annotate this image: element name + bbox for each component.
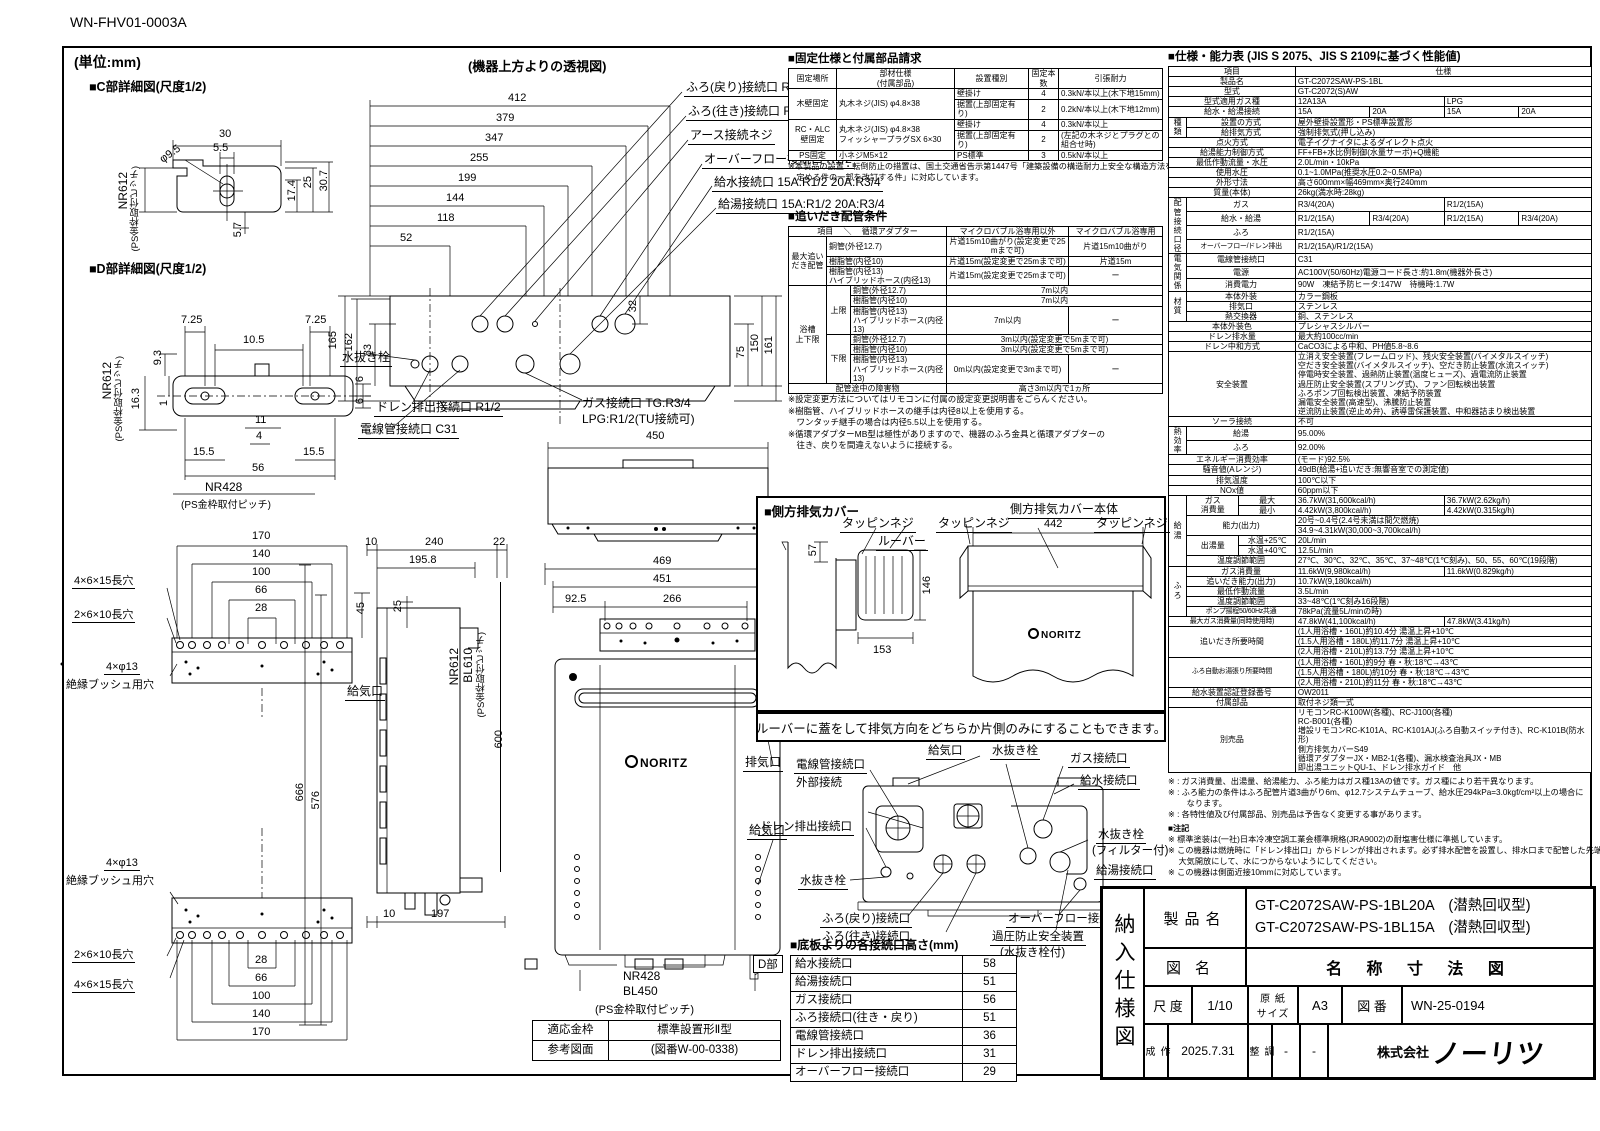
table-cell: ふろ接続口(往き・戻り) xyxy=(791,1009,963,1027)
table-cell: 排気口 xyxy=(1187,301,1296,311)
part-label: 給気口 xyxy=(926,744,965,760)
dim-label: 75 xyxy=(736,346,747,358)
table-cell: 温度調節範囲 xyxy=(1187,596,1296,606)
table-cell: 7m以内 xyxy=(947,306,1069,335)
table-cell: 78kPa(流量5L/minの時) xyxy=(1295,607,1591,617)
table-cell: 熱交換器 xyxy=(1187,311,1296,321)
noritz-logo: NORITZ xyxy=(1028,628,1081,641)
part-label: 水抜き栓 xyxy=(798,874,848,890)
table-cell: 12A13A xyxy=(1295,97,1444,107)
table-cell: 58 xyxy=(963,956,1017,974)
table-cell: ふろ xyxy=(1187,226,1296,240)
table-cell: 据置(上部固定有り) xyxy=(955,99,1029,119)
spec-note: ※ : ガス消費量、出湯量、給湯能力、ふろ能力はガス種13Aの値です。ガス種によ… xyxy=(1168,776,1592,787)
table-cell: 20L/min xyxy=(1295,536,1591,546)
dim-label: 197 xyxy=(431,908,449,920)
table-cell: 付属部品 xyxy=(1169,698,1296,708)
remarks-note: ※ この機器は燃焼時に「ドレン排出口」からドレンが排出されます。必ず排水配管を設… xyxy=(1168,845,1592,856)
dim-label: 666 xyxy=(295,783,306,801)
table-cell: 給湯能力制御方式 xyxy=(1169,147,1296,157)
table-cell: 片道15m10曲がり xyxy=(1069,237,1163,256)
fixing-table: 固定場所部材仕様(付属部品)設置種別固定本数引張耐力木壁固定丸木ネジ(JIS) … xyxy=(788,68,1163,161)
table-cell: (2人用浴槽・210L)約13.7分 湯温上昇+10℃ xyxy=(1295,647,1591,657)
table-cell: 高さ3m以内で1ヵ所 xyxy=(947,384,1163,394)
table-cell: 4.42kW(3,800kcal/h) xyxy=(1295,505,1444,515)
table-cell: 最小 xyxy=(1239,505,1295,515)
product-name-label: 製品名 xyxy=(1145,889,1247,947)
table-cell: 強制排気式(押し込み) xyxy=(1295,127,1591,137)
dim-label: 16.3 xyxy=(131,388,142,409)
table-cell: 本体外装 xyxy=(1187,291,1296,301)
table-cell: 3.5L/min xyxy=(1295,586,1591,596)
table-cell: GT-C2072(S)AW xyxy=(1295,87,1591,97)
table-cell: 51 xyxy=(963,1009,1017,1027)
dim-label: 162 xyxy=(344,333,355,351)
table-cell: 27℃、30℃、32℃、35℃、37~48℃(1℃刻み)、50、55、60℃(1… xyxy=(1295,556,1591,566)
table-cell: 29 xyxy=(963,1063,1017,1081)
table-cell: 丸木ネジ(JIS) φ4.8×38フィッシャープラグSX 6×30 xyxy=(837,119,955,150)
base-heights-table: 給水接続口58給湯接続口51ガス接続口56ふろ接続口(往き・戻り)51電線管接続… xyxy=(790,955,1017,1082)
table-cell: RC・ALC壁固定 xyxy=(789,119,837,150)
part-label: タッピンネジ xyxy=(840,516,916,533)
part-label: 外部接続 xyxy=(794,776,844,791)
spec-note: ※ : ふろ能力の条件はふろ配管片道3曲がり6m、φ12.7システムチューブ、給… xyxy=(1168,787,1592,798)
figure-name-label: 図名 xyxy=(1145,949,1247,985)
table-cell: 給湯 xyxy=(1169,495,1187,566)
table-cell: 点火方式 xyxy=(1169,137,1296,147)
remarks-note: 大気開放にして、水につからないようにしてください。 xyxy=(1168,856,1592,867)
table-cell: 最大追いだき配管 xyxy=(789,237,827,286)
table-cell: 樹脂管(内径13)ハイブリッドホース(内径13) xyxy=(827,266,947,285)
created-label: 作成 xyxy=(1141,1046,1171,1057)
table-cell: 安全装置 xyxy=(1169,352,1296,417)
spec-note: ※ : 各特性値及び付属部品、別売品は予告なく変更する事があります。 xyxy=(1168,809,1592,820)
drawing-no-label: 図 番 xyxy=(1343,987,1403,1023)
table-cell: 使用水圧 xyxy=(1169,168,1296,178)
table-cell: 給湯 xyxy=(1187,427,1296,441)
table-cell: 片道15m xyxy=(1069,256,1163,266)
dim-label: 240 xyxy=(425,536,443,548)
fixing-note: ※本製品の設置・転倒防止の措置は、国土交通省告示第1447号「建築設備の構造耐力… xyxy=(788,161,1164,172)
pitch-label: NR428 xyxy=(623,969,660,983)
table-cell: C31 xyxy=(1295,254,1591,266)
remarks-note: ※ 標準塗装は(一社)日本冷凍空調工業会標準規格(JRA9002)の耐塩害仕様に… xyxy=(1168,834,1592,845)
pitch-label: NR428 xyxy=(205,480,242,494)
side-view: 10 240 22 195.8 25 給気口 10 197 xyxy=(365,538,535,930)
dim-label: 4 xyxy=(256,430,262,442)
oidaki-table: 項目 ＼ 循環アダプターマイクロバブル浴専用以外マイクロバブル浴専用最大追いだき… xyxy=(788,226,1163,394)
part-label: 4×6×15長穴 xyxy=(72,978,135,993)
dim-label: 10 xyxy=(383,908,395,920)
table-cell: 上限 xyxy=(827,286,851,335)
oidaki-note: 往き、戻りを間違えないように接続する。 xyxy=(788,440,1164,451)
dim-label: 25 xyxy=(393,600,404,612)
side-exhaust-cover-section: ■側方排気カバー タッピンネジ ルーバー 57 146 153 側方排気カバー本… xyxy=(756,496,1166,712)
table-cell: 47.8kW(3.41kg/h) xyxy=(1444,617,1591,627)
part-label: 水抜き栓 xyxy=(340,350,392,367)
company-logo: 株式会社ノーリツ xyxy=(1329,1025,1593,1077)
frame-ref-table: 適応金枠標準設置形Ⅱ型参考図面(図番W-00-0338) xyxy=(532,1020,781,1061)
part-label: ふろ(戻り)接続口 xyxy=(820,912,912,928)
table-cell: 36 xyxy=(963,1027,1017,1045)
scale-label: 尺 度 xyxy=(1145,987,1193,1023)
table-cell: 固定場所 xyxy=(789,69,837,89)
table-cell: 最大 xyxy=(1239,495,1295,505)
part-label: ルーバー xyxy=(876,534,928,551)
table-cell: 樹脂管(内径10) xyxy=(851,345,947,355)
top-perspective-view: (機器上方よりの透視図) 412 379 347 255 199 144 118… xyxy=(330,56,790,438)
dim-label: 379 xyxy=(496,112,514,124)
table-cell: ポンプ揚程50/60Hz共通 xyxy=(1187,607,1296,617)
table-cell: 丸木ネジ(JIS) φ4.8×38 xyxy=(837,89,955,120)
table-cell: カラー鋼板 xyxy=(1295,291,1591,301)
table-cell: プレシャスシルバー xyxy=(1295,321,1591,331)
part-label: 電線管接続口 C31 xyxy=(358,422,459,439)
table-cell: 2 xyxy=(1029,130,1059,150)
table-cell: 配管接続口径 xyxy=(1169,198,1187,254)
table-cell: 項目 ＼ 循環アダプター xyxy=(789,227,947,237)
table-cell: 壁掛け xyxy=(955,89,1029,100)
table-cell: 質量(本体) xyxy=(1169,188,1296,198)
table-cell: 47.8kW(41,100kcal/h) xyxy=(1295,617,1444,627)
table-cell: 電線管接続口 xyxy=(1187,254,1296,266)
dim-label: 22 xyxy=(493,536,505,548)
dim-label: 15.5 xyxy=(193,446,214,458)
dim-label: 5.5 xyxy=(213,142,228,154)
product-name-1: GT-C2072SAW-PS-1BL20A (潜熱回収型) xyxy=(1255,896,1593,918)
table-cell: CaCO3による中和、PH値5.8~8.6 xyxy=(1295,342,1591,352)
table-cell: ふろ自動お湯張り所要時間 xyxy=(1169,657,1296,687)
table-cell: 15A xyxy=(1444,107,1519,117)
noritz-logo: NORITZ xyxy=(625,755,688,770)
product-name-2: GT-C2072SAW-PS-1BL15A (潜熱回収型) xyxy=(1255,918,1593,940)
part-label: ガス接続口 TG:R3/4 xyxy=(580,396,693,412)
table-cell: 26kg(満水時:28kg) xyxy=(1295,188,1591,198)
dim-label: 30 xyxy=(219,128,231,140)
pitch-label: BL610 xyxy=(462,648,474,683)
table-cell: 給水装置認証登録番号 xyxy=(1169,687,1296,697)
table-cell: 材質 xyxy=(1169,291,1187,321)
perspective-title: (機器上方よりの透視図) xyxy=(468,56,606,75)
table-cell: (モード)92.5% xyxy=(1295,455,1591,465)
dim-label: 195.8 xyxy=(409,554,437,566)
table-cell: 3 xyxy=(1029,150,1059,161)
table-cell: 20A xyxy=(1370,107,1445,117)
table-cell: オーバーフロー接続口 xyxy=(791,1063,963,1081)
pitch-note: (PS金枠取付ピッチ) xyxy=(477,632,487,718)
dim-label: 57 xyxy=(808,544,819,556)
dim-label: 28 xyxy=(255,602,267,614)
table-cell: 型式 xyxy=(1169,87,1296,97)
part-label: アース接続ネジ xyxy=(688,128,775,145)
part-label: タッピンネジ xyxy=(936,516,1012,533)
part-label: 給水接続口 xyxy=(1078,774,1140,790)
table-cell: マイクロバブル浴専用以外 xyxy=(947,227,1069,237)
table-cell: 仕様 xyxy=(1295,67,1591,77)
table-cell: 型式適用ガス種 xyxy=(1169,97,1296,107)
dim-label: 10 xyxy=(365,536,377,548)
table-cell: 本体外装色 xyxy=(1169,321,1296,331)
table-cell: ガス消費量 xyxy=(1187,566,1296,576)
pitch-label: BL450 xyxy=(623,984,658,998)
table-cell: 0.3kN/本以上 xyxy=(1059,119,1163,130)
dim-label: 146 xyxy=(922,576,933,594)
spec-capability-section: ■仕様・能力表 (JIS S 2075、JIS S 2109に基づく性能値) 項… xyxy=(1168,48,1592,878)
table-cell: リモコンRC-K100W(各種)、RC-J100(各種)RC-B001(各種)増… xyxy=(1295,708,1591,773)
table-cell: ガス接続口 xyxy=(791,991,963,1009)
part-label: LPG:R1/2(TU接続可) xyxy=(580,412,697,428)
dim-label: 153 xyxy=(873,644,891,656)
pitch-label: NR612 xyxy=(101,362,113,399)
table-cell: 60ppm以下 xyxy=(1295,485,1591,495)
table-cell: R3/4(20A) xyxy=(1295,198,1444,212)
table-cell: 最低作動流量 xyxy=(1187,586,1296,596)
table-cell: R1/2(15A) xyxy=(1444,198,1591,212)
pitch-note: (PS金枠取付ピッチ) xyxy=(115,356,125,442)
table-cell: NOx値 xyxy=(1169,485,1296,495)
dim-label: 5.7 xyxy=(233,222,244,237)
table-cell: 2.0L/min・10kPa xyxy=(1295,157,1591,167)
pitch-label: NR612 xyxy=(117,172,129,209)
table-cell: 銅管(外径12.7) xyxy=(851,335,947,345)
dim-label: 150 xyxy=(750,334,761,352)
noritz-mark-icon xyxy=(1028,628,1039,639)
table-cell: (1人用浴槽・160L)約9分 春・秋:18℃→43℃ xyxy=(1295,657,1591,667)
dim-label: 9.3 xyxy=(153,350,164,365)
table-cell: 3m以内(設定変更で5mまで可) xyxy=(947,345,1163,355)
table-cell: ー xyxy=(1069,266,1163,285)
part-label: 2×6×10長穴 xyxy=(72,608,135,623)
spec-note: なります。 xyxy=(1168,798,1592,809)
table-cell: 固定本数 xyxy=(1029,69,1059,89)
dim-label: 56 xyxy=(252,462,264,474)
part-label: 給湯接続口 xyxy=(1094,864,1156,880)
table-cell: 設置種別 xyxy=(955,69,1029,89)
base-heights-title: ■底板よりの各接続口高さ(mm) xyxy=(790,936,1020,953)
table-cell: 片道15m(設定変更で25mまで可) xyxy=(947,266,1069,285)
table-cell: 給水接続口 xyxy=(791,956,963,974)
table-cell: 56 xyxy=(963,991,1017,1009)
part-label: 電線管接続口 xyxy=(794,758,867,774)
dim-label: 100 xyxy=(252,566,270,578)
title-block-category: 納入仕様図 xyxy=(1103,889,1145,1077)
figure-name: 名 称 寸 法 図 xyxy=(1247,949,1593,985)
table-cell: 電気関係 xyxy=(1169,254,1187,291)
table-cell: 樹脂管(内径10) xyxy=(851,296,947,306)
dim-label: 52 xyxy=(400,232,412,244)
table-cell: 消費電力 xyxy=(1187,279,1296,292)
dim-label: 140 xyxy=(252,548,270,560)
paper-size-label: 原 紙サイズ xyxy=(1257,990,1290,1020)
table-cell: (1.5人用浴槽・180L)約10分 春・秋:18℃→43℃ xyxy=(1295,667,1591,677)
table-cell: 屋外壁掛設置形・PS標準設置形 xyxy=(1295,117,1591,127)
dim-label: 442 xyxy=(1044,518,1062,530)
dim-label: 451 xyxy=(653,573,671,585)
oidaki-note: ワンタッチ継手の場合は内径5.5以上を使用する。 xyxy=(788,417,1164,428)
table-cell: 不可 xyxy=(1295,416,1591,426)
dim-label: 469 xyxy=(653,555,671,567)
dim-label: 140 xyxy=(252,1008,270,1020)
dim-label: 266 xyxy=(663,593,681,605)
table-cell: 100℃以下 xyxy=(1295,475,1591,485)
table-cell: 温度調節範囲 xyxy=(1187,556,1296,566)
table-cell: R3/4(20A) xyxy=(1370,212,1445,226)
table-cell: 31 xyxy=(963,1045,1017,1063)
table-cell: 7m以内 xyxy=(947,296,1163,306)
table-cell: OW2011 xyxy=(1295,687,1591,697)
part-label: 水抜き栓 xyxy=(1096,828,1146,844)
table-cell: 樹脂管(内径10) xyxy=(827,256,947,266)
table-cell: R1/2(15A) xyxy=(1295,212,1370,226)
part-label: 水抜き栓 xyxy=(990,744,1040,760)
table-cell: 4 xyxy=(1029,89,1059,100)
table-cell: 立消え安全装置(フレームロッド)、残火安全装置(バイメタルスイッチ)空だき安全装… xyxy=(1295,352,1591,417)
table-cell: (左記の木ネジとプラグとの組合せ時) xyxy=(1059,130,1163,150)
table-cell: 能力(出力) xyxy=(1187,516,1296,536)
dim-label: 7.25 xyxy=(305,314,326,326)
spec-table-title: ■仕様・能力表 (JIS S 2075、JIS S 2109に基づく性能値) xyxy=(1168,48,1592,64)
table-cell: GT-C2072SAW-PS-1BL xyxy=(1295,77,1591,87)
table-cell: 追いだき能力(出力) xyxy=(1187,576,1296,586)
table-cell: R1/2(15A) xyxy=(1444,212,1519,226)
table-cell: 7m以内 xyxy=(947,286,1163,296)
part-label: ドレン排出接続口 xyxy=(758,820,854,836)
table-cell: 据置(上部固定有り) xyxy=(955,130,1029,150)
dim-label: 170 xyxy=(252,1026,270,1038)
dim-label: 576 xyxy=(311,791,322,809)
table-cell: 騒音値(Aレンジ) xyxy=(1169,465,1296,475)
part-label: ドレン排出接続口 R1/2 xyxy=(374,400,503,417)
table-cell: 取付ネジ類一式 xyxy=(1295,698,1591,708)
side-view-drawing xyxy=(365,538,535,930)
table-cell: オーバーフロー/ドレン排出 xyxy=(1187,240,1296,254)
table-cell: 12.5L/min xyxy=(1295,546,1591,556)
adjust-value-1: - xyxy=(1273,1025,1301,1077)
table-cell: ドレン中和方式 xyxy=(1169,342,1296,352)
noritz-mark-icon xyxy=(625,755,638,768)
dim-label: 199 xyxy=(458,172,476,184)
title-block: 納入仕様図 製品名 GT-C2072SAW-PS-1BL20A (潜熱回収型) … xyxy=(1100,886,1596,1080)
fixing-table-title: ■固定仕様と付属部品請求 xyxy=(788,50,1164,66)
dim-label: 66 xyxy=(255,584,267,596)
dim-label: 161 xyxy=(764,336,775,354)
dim-label: 347 xyxy=(485,132,503,144)
table-cell: 出湯量 xyxy=(1187,536,1239,556)
table-cell: 給水・給湯接続 xyxy=(1169,107,1296,117)
part-label: 4×φ13 xyxy=(104,660,140,675)
table-cell: 95.00% xyxy=(1295,427,1591,441)
table-cell: 11.6kW(9,980kcal/h) xyxy=(1295,566,1444,576)
dim-label: 255 xyxy=(470,152,488,164)
part-label: 給気口 xyxy=(345,684,385,701)
table-cell: ふろ xyxy=(1187,441,1296,455)
table-cell: 0.3kN/本以上(木下地15mm) xyxy=(1059,89,1163,100)
louver-note: ルーバーに蓋をして排気方向をどちらか片側のみにすることもできます。 xyxy=(756,712,1166,742)
table-cell: FF+FB+水比例制御(水量サーボ)+Q機能 xyxy=(1295,147,1591,157)
table-cell: R1/2(15A) xyxy=(1295,226,1591,240)
table-cell: 3m以内(設定変更で5mまで可) xyxy=(947,335,1163,345)
fixing-note: 定める件の一部を改訂する件」に対応しています。 xyxy=(788,172,1164,183)
table-cell: 給排気方式 xyxy=(1187,127,1296,137)
table-cell: PS固定 xyxy=(789,150,837,161)
table-cell: ドレン排水量 xyxy=(1169,331,1296,341)
pitch-note: (PS金枠取付ピッチ) xyxy=(131,166,141,252)
drawing-no-value: WN-25-0194 xyxy=(1403,987,1593,1023)
dim-label: 66 xyxy=(255,972,267,984)
table-cell: 11.6kW(0.829kg/h) xyxy=(1444,566,1591,576)
frame-ref-section: 適応金枠標準設置形Ⅱ型参考図面(図番W-00-0338) xyxy=(532,1020,782,1061)
table-cell: ステンレス xyxy=(1295,301,1591,311)
table-cell: 給水・給湯 xyxy=(1187,212,1296,226)
part-label: 2×6×10長穴 xyxy=(72,948,135,963)
fixing-spec-section: ■固定仕様と付属部品請求 固定場所部材仕様(付属部品)設置種別固定本数引張耐力木… xyxy=(788,50,1164,183)
adjust-value-2: - xyxy=(1301,1025,1329,1077)
table-cell: ふろ xyxy=(1169,566,1187,617)
table-cell: 銅管(外径12.7) xyxy=(827,237,947,256)
table-cell: 34.9~4.31kW(30,000~3,700kcal/h) xyxy=(1295,526,1591,536)
part-label: (フィルター付) xyxy=(1090,844,1170,859)
dim-label: 118 xyxy=(437,212,455,224)
pitch-label: NR612 xyxy=(448,648,460,685)
bracket-bottom-view: 4×φ13 絶縁ブッシュ用穴 2×6×10長穴 4×6×15長穴 28 66 1… xyxy=(62,828,392,1073)
table-cell: 15A xyxy=(1295,107,1370,117)
table-cell: ガス消費量 xyxy=(1187,495,1239,515)
table-cell: 33~48℃(1℃刻み16段階) xyxy=(1295,596,1591,606)
table-cell: 0.1~1.0MPa(推奨水圧0.2~0.5MPa) xyxy=(1295,168,1591,178)
table-cell: 引張耐力 xyxy=(1059,69,1163,89)
table-cell: 最大ガス消費量(同時使用時) xyxy=(1169,617,1296,627)
table-cell: 適応金枠 xyxy=(533,1021,609,1041)
table-cell: 10.7kW(9,180kcal/h) xyxy=(1295,576,1591,586)
part-label: ガス接続口 xyxy=(1068,752,1130,768)
oidaki-note: ※樹脂管、ハイブリッドホースの継手は内径8以上を使用する。 xyxy=(788,406,1164,417)
table-cell: ガス xyxy=(1187,198,1296,212)
table-cell: 下限 xyxy=(827,335,851,384)
table-cell: 片道15m10曲がり(設定変更で25mまで可) xyxy=(947,237,1069,256)
table-cell: 参考図面 xyxy=(533,1040,609,1060)
table-cell: PS標準 xyxy=(955,150,1029,161)
table-cell: AC100V(50/60Hz)電源コード長さ:約1.8m(機器外長さ) xyxy=(1295,266,1591,278)
table-cell: 4.42kW(0.315kg/h) xyxy=(1444,505,1591,515)
table-cell: (2人用浴槽・210L)約11分 春・秋:18℃→43℃ xyxy=(1295,677,1591,687)
spec-table: 項目仕様製品名GT-C2072SAW-PS-1BL型式GT-C2072(S)AW… xyxy=(1168,66,1592,773)
table-cell: 36.7kW(31,600kcal/h) xyxy=(1295,495,1444,505)
table-cell: マイクロバブル浴専用 xyxy=(1069,227,1163,237)
table-cell: 電子イグナイタによるダイレクト点火 xyxy=(1295,137,1591,147)
table-cell: 51 xyxy=(963,973,1017,991)
table-cell: 壁掛け xyxy=(955,119,1029,130)
part-label: タッピンネジ xyxy=(1094,516,1170,533)
table-cell: 4 xyxy=(1029,119,1059,130)
table-cell: 電源 xyxy=(1187,266,1296,278)
dim-label: 1 xyxy=(159,400,170,406)
table-cell: 片道15m(設定変更で25mまで可) xyxy=(947,256,1069,266)
table-cell: 銅、ステンレス xyxy=(1295,311,1591,321)
table-cell: 給湯接続口 xyxy=(791,973,963,991)
dim-label: 412 xyxy=(508,92,526,104)
table-cell: 銅管(外径12.7) xyxy=(851,286,947,296)
table-cell: 最大約100cc/min xyxy=(1295,331,1591,341)
table-cell: 種類 xyxy=(1169,117,1187,137)
part-label: 4×6×15長穴 xyxy=(72,574,135,589)
specification-sheet: { "doc_number":"WN-FHV01-0003A", "unit_n… xyxy=(0,0,1600,1131)
table-cell: 部材仕様(付属部品) xyxy=(837,69,955,89)
base-heights-section: ■底板よりの各接続口高さ(mm) 給水接続口58給湯接続口51ガス接続口56ふろ… xyxy=(790,936,1020,1082)
table-cell: 20号~0.4号(2.4号未満は間欠燃焼) xyxy=(1295,516,1591,526)
pitch-note: (PS金枠取付ピッチ) xyxy=(595,1001,694,1017)
table-cell: 配管途中の障害物 xyxy=(789,384,947,394)
table-cell: (1人用浴槽・160L)約10.4分 湯温上昇+10℃ xyxy=(1295,627,1591,637)
